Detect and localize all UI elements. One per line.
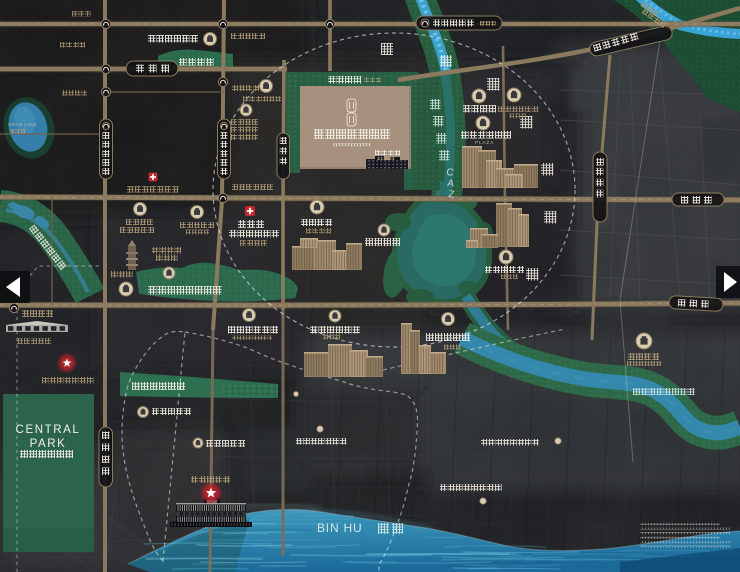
svg-text:PLAZA: PLAZA [475,140,494,145]
svg-text:C: C [446,167,455,179]
svg-text:SWAN LAKE: SWAN LAKE [8,122,37,127]
svg-text:CENTRAL: CENTRAL [16,424,81,436]
svg-text:PARK: PARK [30,438,67,450]
svg-text:BIN HU: BIN HU [317,521,362,535]
